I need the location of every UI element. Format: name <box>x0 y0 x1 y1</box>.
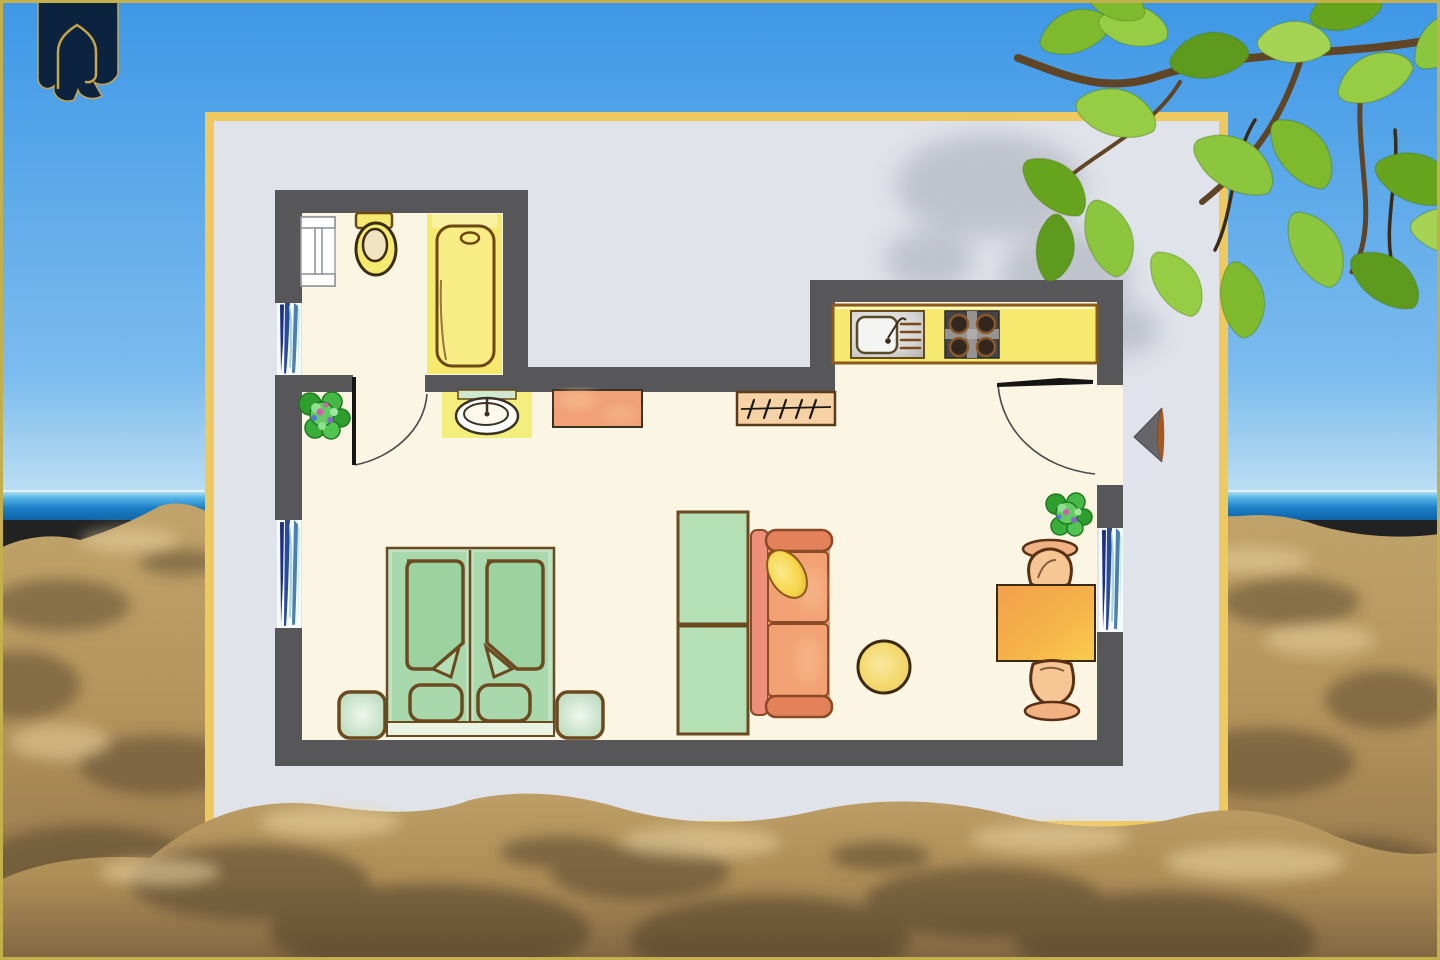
chair-bottom <box>1025 661 1079 721</box>
scene-canvas <box>0 0 1440 960</box>
nightstand-right <box>557 692 603 738</box>
dresser <box>553 390 642 427</box>
kitchen-counter <box>833 305 1097 363</box>
bathtub <box>427 214 502 374</box>
window-bathroom <box>277 303 301 375</box>
beach-scene <box>0 0 1440 960</box>
entrance-opening <box>1097 385 1123 485</box>
dining-table <box>997 585 1095 661</box>
window-left <box>277 520 301 628</box>
washbasin <box>442 390 532 438</box>
floor-plan-poster <box>205 112 1228 830</box>
window-right <box>1099 528 1123 632</box>
kitchen-sink <box>851 311 924 358</box>
stove-with-four-burners <box>945 311 999 358</box>
side-stool <box>858 641 910 693</box>
chair-top <box>1023 540 1077 589</box>
pillow-right <box>478 685 530 721</box>
shelf-unit <box>678 512 748 734</box>
sofa <box>751 530 832 717</box>
toilet <box>356 213 396 275</box>
wardrobe-with-hangers <box>737 392 835 425</box>
radiator <box>301 217 335 286</box>
bathroom-doorway <box>353 375 425 392</box>
nightstand-left <box>339 692 385 738</box>
pillow-left <box>410 685 462 721</box>
headboard <box>387 722 554 736</box>
